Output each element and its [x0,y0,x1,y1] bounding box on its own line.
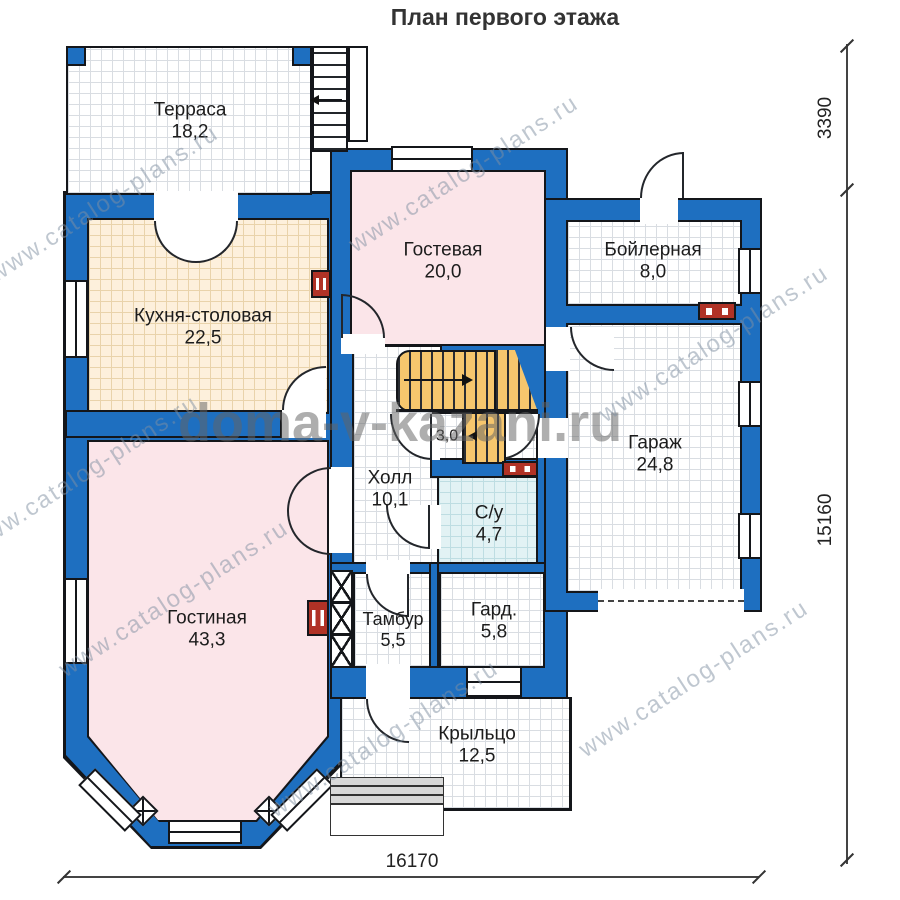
door-boiler-exterior [640,152,684,198]
porch-step-3 [330,795,444,804]
stove-stair [502,461,538,477]
doorway-terrace-kitchen [154,191,238,221]
label-kitchen: Кухня-столовая 22,5 [133,306,273,351]
pier-vestibule-3 [330,634,353,668]
terrace-pillar-right [292,46,312,66]
dimension-line-bottom [63,876,759,878]
window-kitchen-left [64,280,88,358]
watermark-center: doma-v-kazani.ru [178,392,622,454]
window-garage-right-2 [738,513,762,559]
porch-step-2 [330,786,444,795]
staircase-arrow-line [404,379,462,381]
watermark-diagonal-7: www.catalog-plans.ru [574,594,814,764]
window-bay-bottom [168,820,242,844]
floor-plan: План первого этажа [0,0,900,900]
label-wardrobe: Гард. 5,8 [471,600,517,645]
label-boiler: Бойлерная 8,0 [604,240,701,285]
exterior-stairs-arrow-head [310,95,319,105]
label-bathroom: С/у 4,7 [475,503,504,548]
garage-gate-dashed-line [598,600,744,602]
label-garage: Гараж 24,8 [628,433,682,478]
dimension-15160: 15160 [815,494,837,547]
label-porch: Крыльцо 12,5 [438,724,516,769]
label-guest: Гостевая 20,0 [404,240,483,285]
exterior-stairs-arrow-line [318,99,342,101]
doorway-living [329,467,352,553]
window-boiler-right [738,248,762,294]
exterior-stairs-landing [348,46,368,142]
doorway-porch [366,664,410,699]
wall-vestibule-wardrobe [429,562,439,668]
page-title: План первого этажа [391,4,619,31]
stove-kitchen [311,270,331,298]
window-garage-right-1 [738,381,762,427]
staircase-arrow-head [462,374,473,386]
doorway-vestibule [366,560,410,574]
terrace-pillar-left [66,46,86,66]
doorway-boiler [640,196,678,224]
label-hall: Холл 10,1 [368,468,413,513]
dimension-3390: 3390 [815,97,837,139]
pier-vestibule-1 [330,570,353,603]
porch-step-landing [330,804,444,836]
doorway-garage [546,327,570,371]
dimension-16170: 16170 [386,851,439,873]
label-living: Гостиная 43,3 [167,608,247,653]
label-vestibule: Тамбур 5,5 [362,609,423,651]
dimension-line-right [846,44,848,864]
fireplace-living [307,600,329,636]
pier-vestibule-2 [330,602,353,635]
